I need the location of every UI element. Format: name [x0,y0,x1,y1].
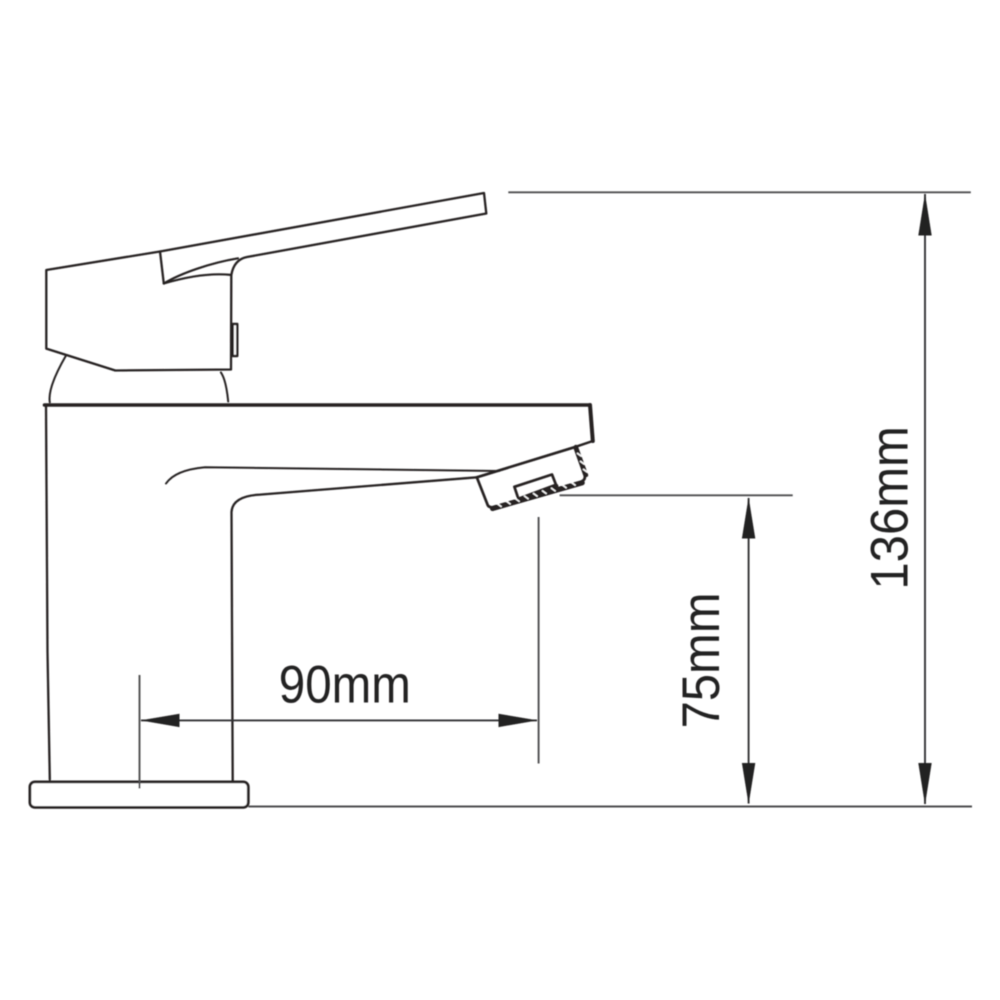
svg-text:90mm: 90mm [279,656,411,715]
svg-text:136mm: 136mm [861,426,920,590]
svg-text:75mm: 75mm [672,592,731,728]
